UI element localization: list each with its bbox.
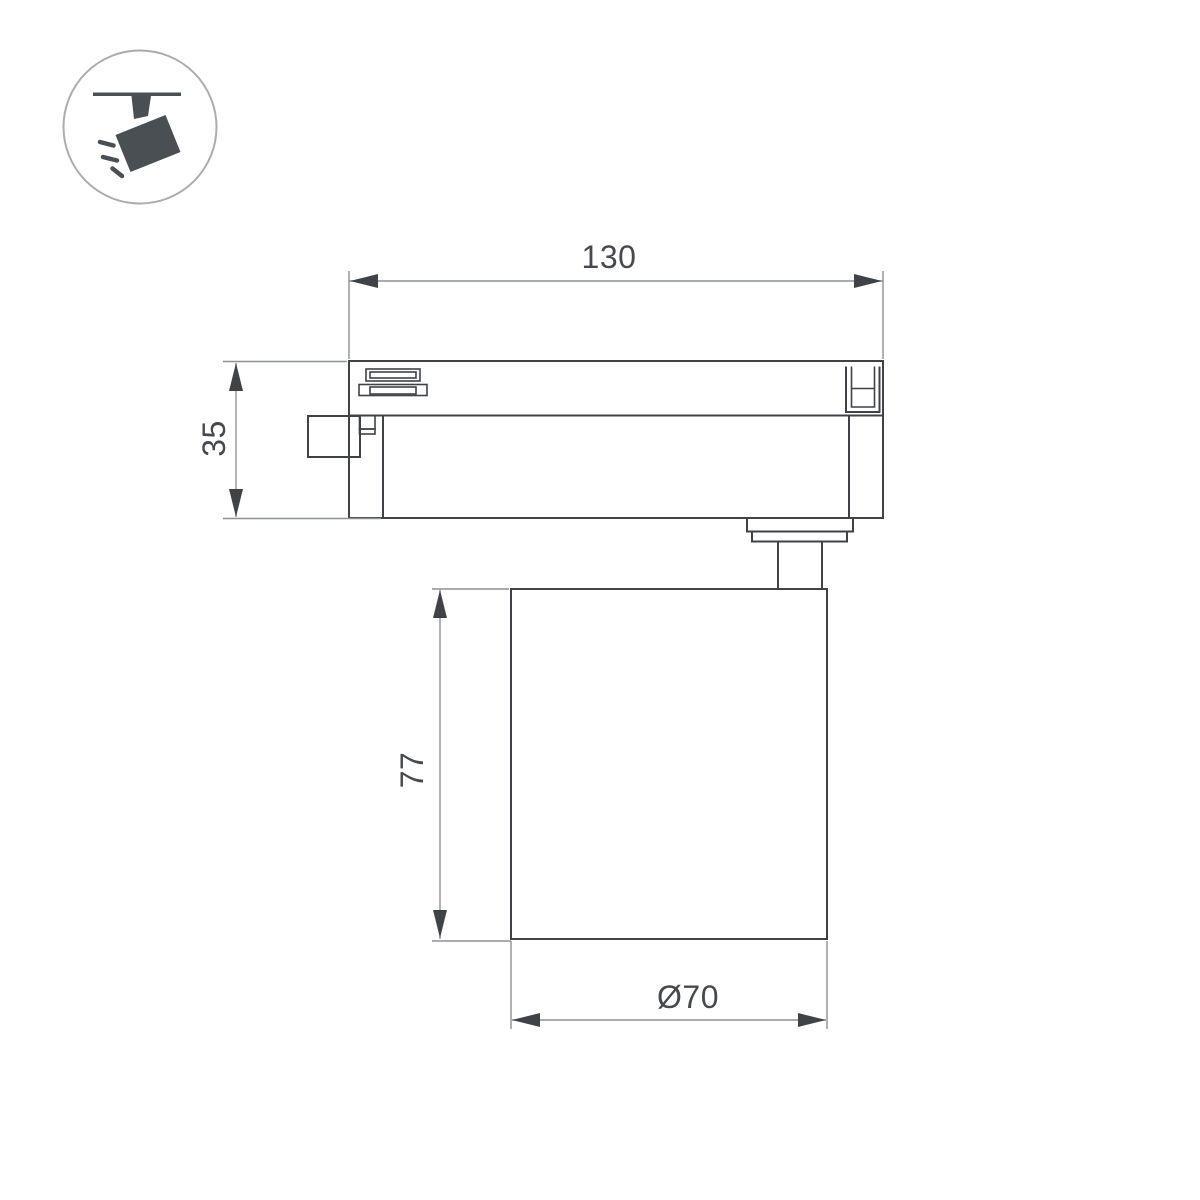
adapter-clip-detail	[366, 369, 420, 381]
dimension-label-77: 77	[394, 752, 430, 789]
track-adapter-body	[349, 361, 883, 518]
arrowhead-left	[350, 274, 378, 288]
adapter-latch-detail	[360, 429, 376, 434]
dimension-body-height: 77	[394, 589, 511, 941]
adapter-end-bracket-inner	[852, 367, 875, 408]
arrowhead-up	[229, 363, 243, 391]
lamp-stem	[778, 542, 822, 590]
adapter-latch-detail	[360, 416, 376, 430]
icon-track-line	[93, 93, 181, 97]
arrowhead-right	[854, 274, 882, 288]
arrowhead-down	[433, 910, 447, 938]
adapter-clip-detail	[370, 372, 416, 378]
dimension-label-diameter: Ø70	[657, 979, 719, 1015]
lamp-body	[511, 589, 827, 939]
adapter-clip-detail	[370, 387, 416, 394]
dimension-body-diameter: Ø70	[511, 941, 827, 1029]
dimension-label-35: 35	[196, 420, 232, 457]
adapter-switch-block	[308, 416, 360, 457]
arrowhead-right	[798, 1013, 826, 1027]
adapter-flange-lower	[752, 532, 847, 542]
dimension-label-130: 130	[582, 239, 637, 275]
arrowhead-left	[512, 1013, 540, 1027]
arrowhead-up	[433, 590, 447, 618]
arrowhead-down	[229, 489, 243, 517]
dimension-adapter-height: 35	[196, 362, 381, 519]
adapter-flange-upper	[747, 518, 853, 532]
track-spotlight-icon	[64, 51, 217, 204]
fixture-side-view	[308, 361, 883, 939]
dimension-adapter-width: 130	[349, 239, 883, 359]
technical-drawing-canvas: 130 35 77 Ø70	[0, 0, 1200, 1200]
